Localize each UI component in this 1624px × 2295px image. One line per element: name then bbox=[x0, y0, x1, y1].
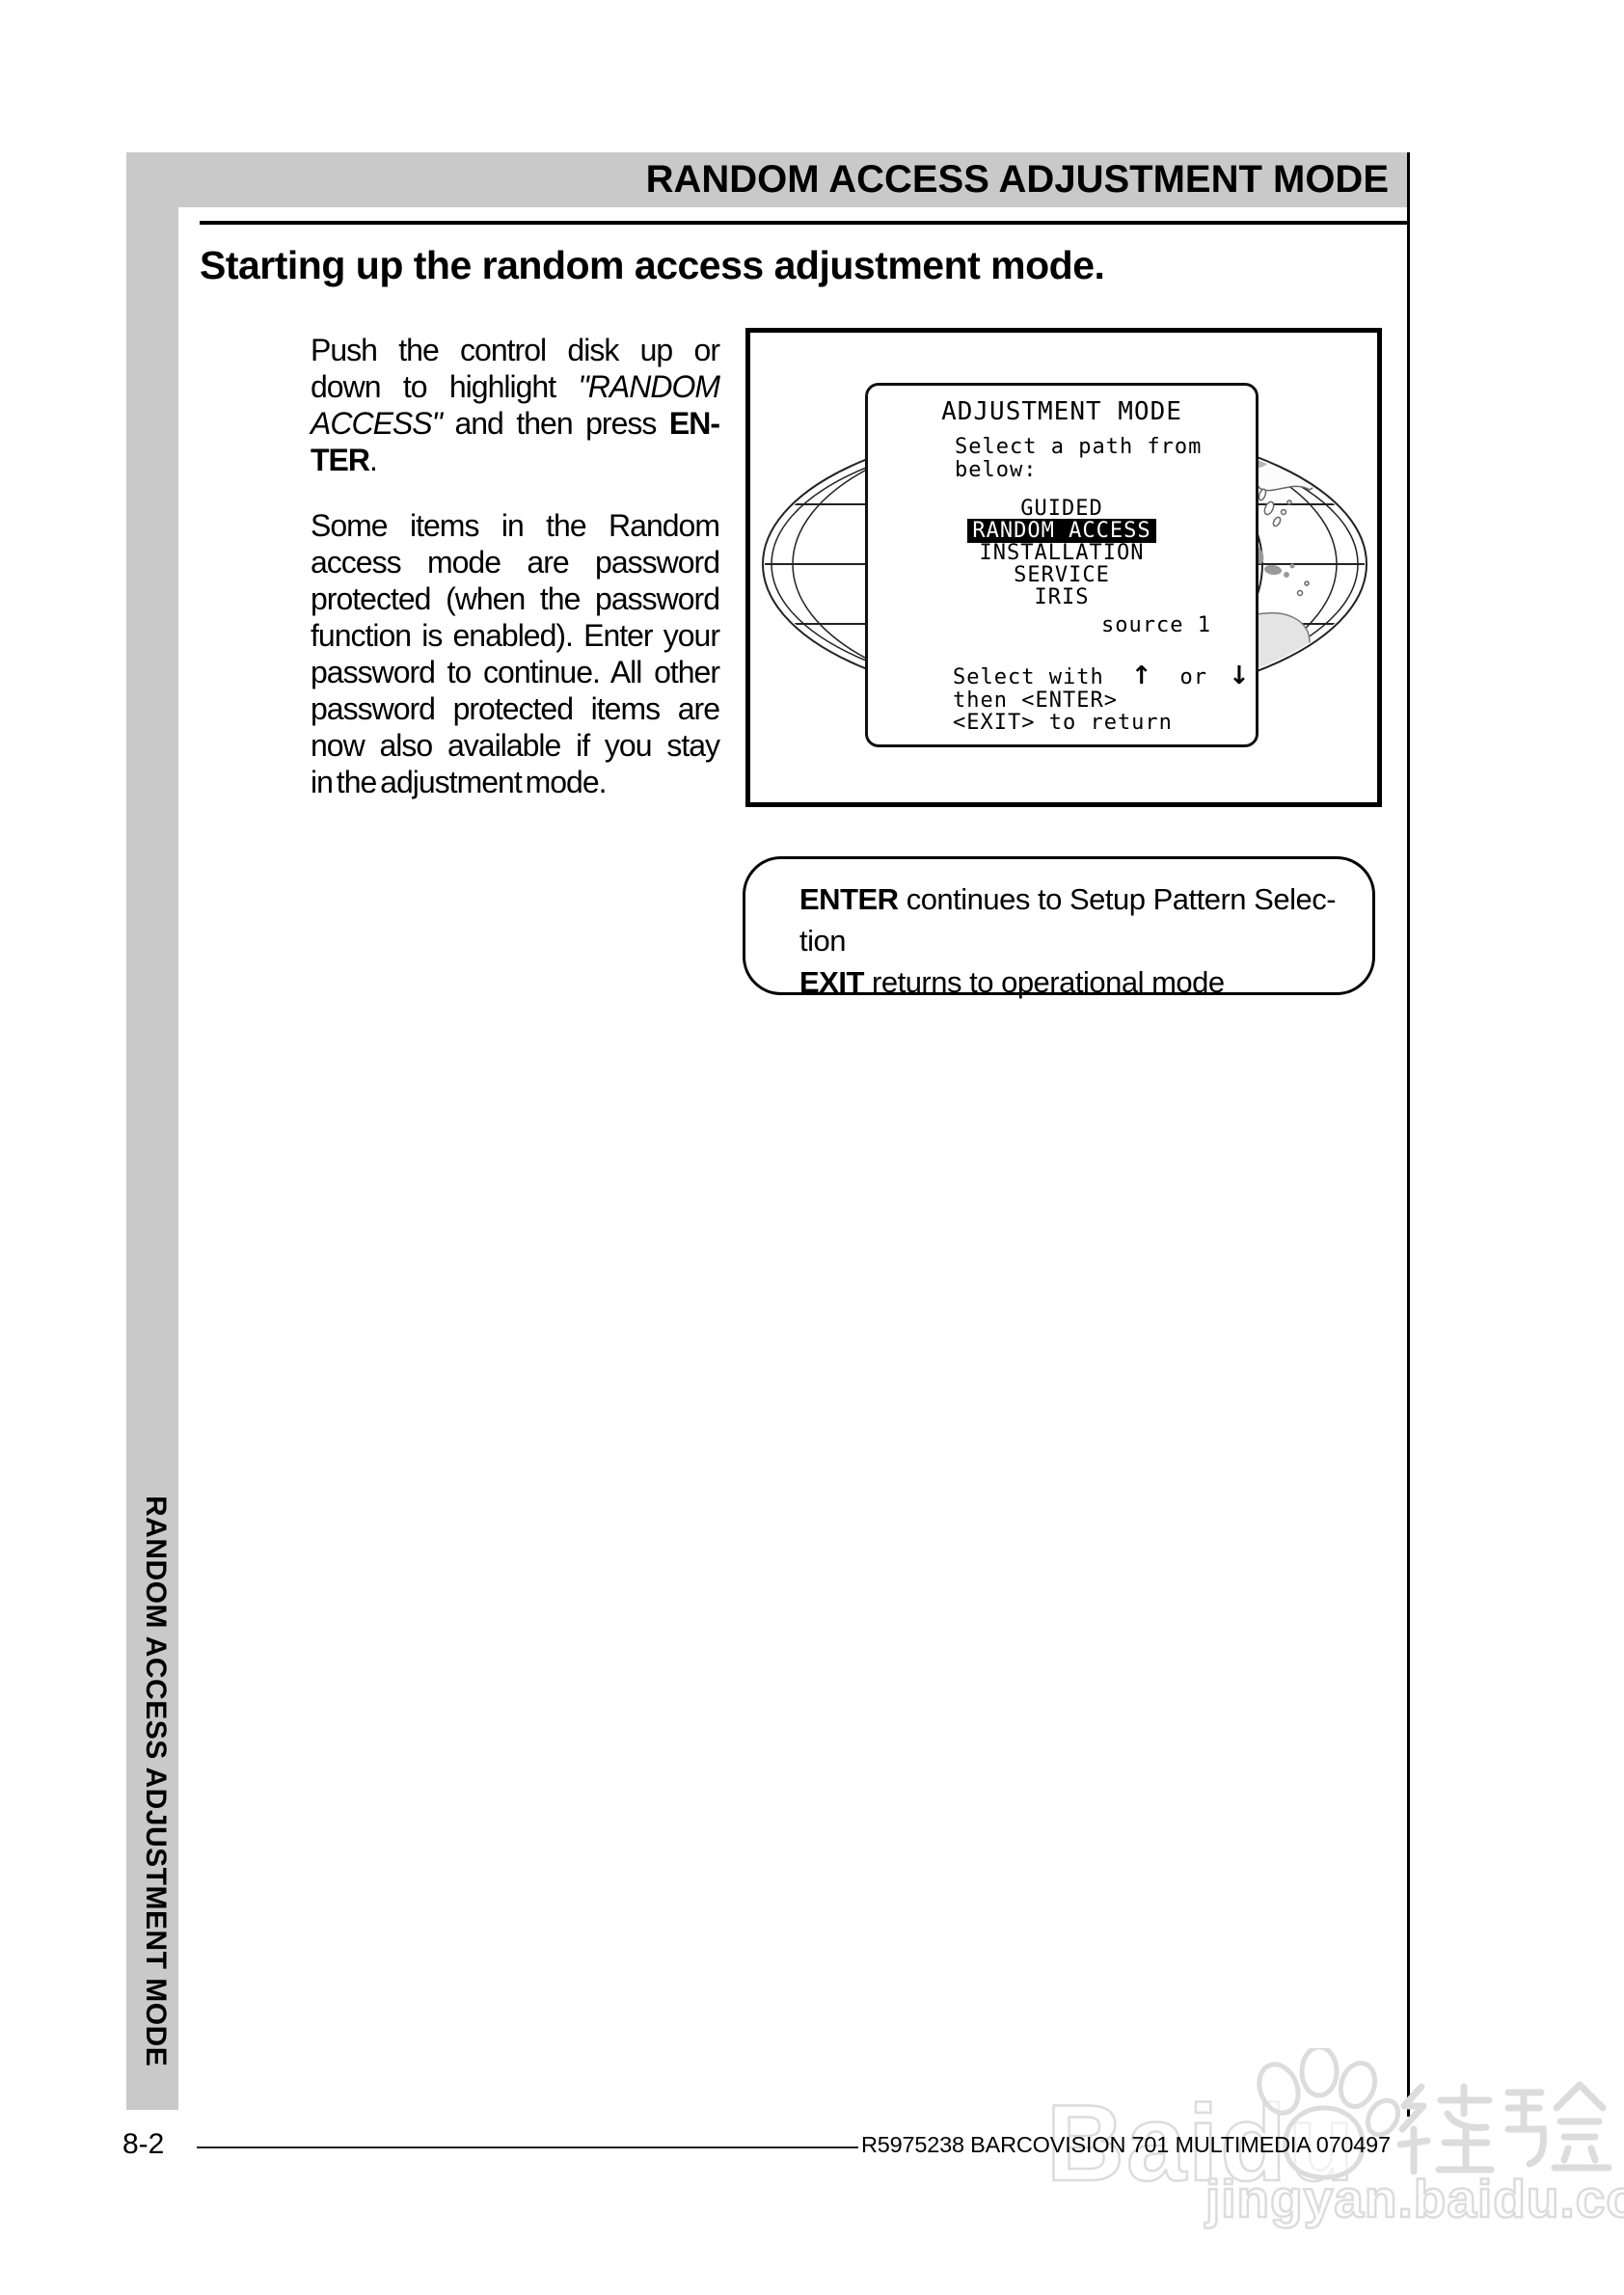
menu-item-installation[interactable]: INSTALLATION bbox=[868, 542, 1256, 564]
menu-prompt-line: below: bbox=[955, 459, 1202, 482]
osd-figure: ADJUSTMENT MODE Select a path from below… bbox=[745, 328, 1382, 807]
menu-prompt-line: Select a path from bbox=[955, 436, 1202, 459]
menu-prompt: Select a path from below: bbox=[955, 436, 1202, 482]
section-heading: Starting up the random access adjustment… bbox=[200, 243, 1104, 288]
adjustment-mode-panel: ADJUSTMENT MODE Select a path from below… bbox=[865, 383, 1259, 747]
text-line: Push the control disk up or bbox=[311, 332, 719, 368]
footer-rule bbox=[197, 2146, 858, 2148]
hint-exit-line: <EXIT> to return bbox=[953, 712, 1251, 735]
text-line: Some items in the Random bbox=[311, 507, 719, 544]
down-arrow-icon: ↓ bbox=[1229, 661, 1251, 690]
selected-highlight: RANDOM ACCESS bbox=[967, 519, 1155, 543]
note-line: tion bbox=[799, 920, 1363, 961]
content-frame-border bbox=[1407, 152, 1410, 2117]
text-line: now also available if you stay bbox=[311, 727, 719, 764]
text-line: down to highlight "RANDOM bbox=[311, 368, 719, 405]
text-line: password to continue. All other bbox=[311, 654, 719, 690]
text-line: access mode are password bbox=[311, 544, 719, 580]
menu-item-iris[interactable]: IRIS bbox=[868, 586, 1256, 608]
menu-item-random-access[interactable]: RANDOM ACCESS bbox=[868, 520, 1256, 542]
source-indicator: source 1 bbox=[1101, 613, 1211, 637]
note-line: ENTER continues to Setup Pattern Selec- bbox=[799, 878, 1363, 920]
text-line: function is enabled). Enter your bbox=[311, 617, 719, 654]
menu-title: ADJUSTMENT MODE bbox=[868, 397, 1256, 426]
text-line: ACCESS" and then press EN- bbox=[311, 405, 719, 442]
watermark-url: jingyan.baidu.com bbox=[1205, 2168, 1624, 2229]
text-line: in the adjustment mode. bbox=[311, 764, 719, 800]
text-line: password protected items are bbox=[311, 690, 719, 727]
up-arrow-icon: ↑ bbox=[1131, 661, 1153, 690]
menu-item-service[interactable]: SERVICE bbox=[868, 564, 1256, 586]
menu-item-guided[interactable]: GUIDED bbox=[868, 498, 1256, 520]
menu-hints: Select with↑or↓ then <ENTER> <EXIT> to r… bbox=[953, 665, 1251, 735]
page-number: 8-2 bbox=[122, 2128, 164, 2161]
manual-page: { "header": { "title": "RANDOM ACCESS AD… bbox=[0, 0, 1624, 2295]
note-text: ENTER continues to Setup Pattern Selec- … bbox=[745, 859, 1372, 1003]
page-header-title: RANDOM ACCESS ADJUSTMENT MODE bbox=[126, 152, 1410, 207]
menu-items: GUIDED RANDOM ACCESS INSTALLATION SERVIC… bbox=[868, 498, 1256, 608]
hint-select-line: Select with↑or↓ bbox=[953, 665, 1251, 689]
document-reference: R5975238 BARCOVISION 701 MULTIMEDIA 0704… bbox=[861, 2132, 1391, 2158]
note-line: EXIT returns to operational mode bbox=[799, 961, 1363, 1003]
sidebar-vertical-label: RANDOM ACCESS ADJUSTMENT MODE bbox=[134, 1496, 176, 2110]
paragraph-2: Some items in the Random access mode are… bbox=[311, 507, 719, 800]
text-line: TER. bbox=[311, 442, 719, 478]
text-line: protected (when the password bbox=[311, 580, 719, 617]
note-box: ENTER continues to Setup Pattern Selec- … bbox=[743, 856, 1375, 995]
paragraph-1: Push the control disk up or down to high… bbox=[311, 332, 719, 478]
hint-enter-line: then <ENTER> bbox=[953, 689, 1251, 713]
heading-rule bbox=[200, 221, 1407, 225]
